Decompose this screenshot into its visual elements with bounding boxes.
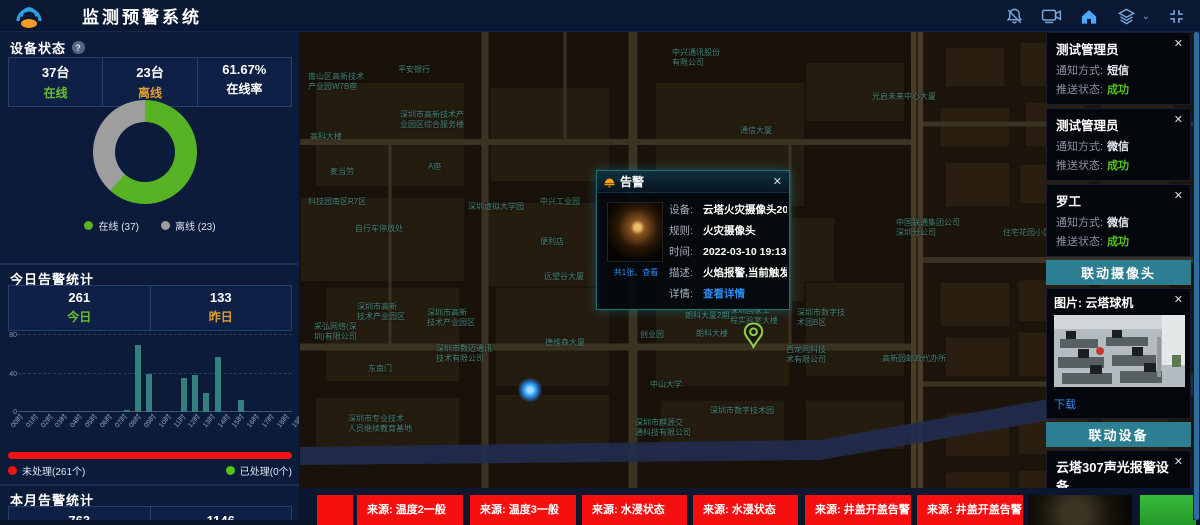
map-label: 中兴工业园 (540, 197, 580, 207)
popup-field-value: 云塔火灾摄像头202 (703, 202, 787, 217)
map-label: 中国联通集团公司 深圳分公司 (896, 218, 960, 238)
row-value: 微信 (1107, 138, 1129, 154)
stat-label: 离线 (105, 84, 194, 101)
app-logo-icon (14, 2, 44, 30)
legend-label: 离线 (23) (175, 218, 216, 233)
bar-slot (87, 335, 98, 412)
bar-slot (29, 335, 40, 412)
map-label: 麦当劳 (330, 167, 354, 177)
camera-section-header: 联动摄像头 (1046, 260, 1191, 285)
alarm-chip[interactable]: 来源: 井盖开盖告警 (805, 495, 911, 525)
detail-link[interactable]: 查看详情 (703, 286, 787, 301)
map-label: 光启未来中心大厦 (872, 92, 936, 102)
map-label: 创业园 (640, 330, 664, 340)
popup-field-value: 火焰报警,当前触发值为... (703, 265, 787, 280)
bar (146, 374, 152, 413)
alarm-snapshot-image[interactable] (607, 202, 663, 262)
bar-slot (258, 335, 269, 412)
bar (124, 410, 130, 412)
donut-legend: 在线 (37)离线 (23) (0, 218, 300, 233)
map-label: 中山大学 (650, 380, 682, 390)
bar-xlabels: 00时01时02时03时04时05时06时07时08时09时10时11时12时1… (12, 415, 294, 431)
bar (215, 357, 221, 412)
map-label: 便利店 (540, 237, 564, 247)
camera-card: ✕ 图片: 云塔球机 下载 (1046, 288, 1191, 419)
popup-field: 时间:2022-03-10 19:13:07 (669, 241, 787, 262)
popup-field-label: 描述: (669, 265, 703, 280)
unhandled-progress-bar (8, 452, 292, 459)
right-notification-panel: ✕测试管理员通知方式:短信推送状态:成功✕测试管理员通知方式:微信推送状态:成功… (1044, 32, 1193, 492)
bar-slot (281, 335, 292, 412)
bar-slot (224, 335, 235, 412)
bar-slot (189, 335, 200, 412)
divider (0, 484, 300, 486)
bar-slot (64, 335, 75, 412)
map-label: 深圳市高新 技术产业园区 (427, 308, 475, 328)
alarm-chip[interactable]: 来源: 水浸状态 (582, 495, 687, 525)
card-row: 通知方式:微信 (1056, 138, 1181, 154)
notification-card: ✕测试管理员通知方式:微信推送状态:成功 (1046, 108, 1191, 181)
map-label: 高新园邮政代办所 (882, 354, 946, 364)
stat-cell: 37台在线 (9, 58, 103, 106)
map-label: 深圳虚拟大学园 (468, 202, 524, 212)
close-icon[interactable]: ✕ (1174, 293, 1183, 306)
bar-slot (41, 335, 52, 412)
row-value: 成功 (1107, 81, 1129, 97)
y-tick-label: 40 (5, 371, 17, 378)
legend-dot (8, 466, 17, 475)
alarm-chip[interactable]: 来源: 水浸状态 (693, 495, 798, 525)
map-label: 深圳市数字技术园 (710, 406, 774, 416)
legend-label: 已处理(0个) (240, 463, 292, 478)
legend-item: 已处理(0个) (226, 463, 292, 478)
bar-slot (144, 335, 155, 412)
popup-field-label: 时间: (669, 244, 703, 259)
device-status-header: 设备状态 ? (10, 38, 85, 57)
popup-field: 详情:查看详情 (669, 283, 787, 304)
bottom-alarm-bar: 来源: 温度2一般来源: 温度3一般来源: 水浸状态来源: 水浸状态来源: 井盖… (300, 488, 1200, 520)
card-row: 通知方式:短信 (1056, 62, 1181, 78)
bar-plot (18, 335, 292, 412)
close-icon[interactable]: ✕ (773, 175, 782, 188)
app-header: 监测预警系统 ⌄ (0, 0, 1200, 32)
popup-field-label: 规则: (669, 223, 703, 238)
stat-cell: 763 (9, 507, 151, 520)
close-icon[interactable]: ✕ (1174, 455, 1183, 468)
row-label: 通知方式: (1056, 214, 1103, 230)
bar (238, 400, 244, 412)
card-row: 推送状态:成功 (1056, 233, 1181, 249)
legend-dot (226, 466, 235, 475)
map-label: 远望谷大厦 (544, 272, 584, 282)
alarm-chip[interactable]: 来源: 温度2一般 (357, 495, 463, 525)
bar (135, 345, 141, 412)
scrollbar-thumb[interactable] (1194, 32, 1199, 520)
scrollbar[interactable] (1193, 32, 1200, 520)
x-tick-label: 19时 (289, 412, 300, 434)
map-label: 朗科大楼 (696, 329, 728, 339)
card-row: 推送状态:成功 (1056, 157, 1181, 173)
map-label: 深圳市专业技术 人员继续教育基地 (348, 414, 412, 434)
close-icon[interactable]: ✕ (1174, 189, 1183, 202)
alarm-chip[interactable]: 来源: 井盖开盖告警 (917, 495, 1023, 525)
stat-label: 在线 (11, 84, 100, 101)
map-label: 深圳市数字技 术园B区 (797, 308, 845, 328)
map-label: 高科大楼 (310, 132, 342, 142)
alarm-chip[interactable] (317, 495, 353, 525)
map-label: 深圳市高新技术产 业园区综合服务楼 (400, 110, 464, 130)
stat-value: 763 (11, 511, 148, 520)
popup-field-label: 设备: (669, 202, 703, 217)
alarm-thumbnail-green[interactable] (1140, 495, 1196, 525)
map-label: 科技园南区R7区 (308, 197, 366, 207)
map-label: 深圳市数迈通讯 技术有限公司 (436, 344, 492, 364)
progress-legend: 未处理(261个)已处理(0个) (8, 463, 292, 478)
notification-card: ✕测试管理员通知方式:短信推送状态:成功 (1046, 32, 1191, 105)
stat-value: 37台 (11, 62, 100, 81)
header-toolbar: ⌄ (1005, 0, 1186, 32)
bar (192, 375, 198, 412)
bar-slot (212, 335, 223, 412)
donut-hole (115, 122, 175, 182)
bell-off-icon[interactable] (1005, 7, 1024, 26)
month-alarms-table: 7631146 (8, 506, 292, 520)
bar-slot (109, 335, 120, 412)
alarm-popup-title: 告警 (620, 173, 773, 190)
map-label: 东南门 (368, 364, 392, 374)
stat-label: 昨日 (153, 308, 290, 325)
legend-dot (161, 221, 170, 230)
map-label: 采弘网络(深 圳)有限公司 (314, 322, 357, 342)
card-row: 通知方式:微信 (1056, 214, 1181, 230)
alarm-location-pin[interactable] (743, 322, 764, 354)
bar-slot (98, 335, 109, 412)
video-camera-icon[interactable] (1041, 7, 1062, 25)
popup-field-label: 详情: (669, 286, 703, 301)
row-value: 微信 (1107, 214, 1129, 230)
bar-slot (166, 335, 177, 412)
row-label: 推送状态: (1056, 233, 1103, 249)
legend-label: 未处理(261个) (22, 463, 85, 478)
bar-slot (178, 335, 189, 412)
alarm-thumbnail-dark[interactable] (1028, 495, 1132, 525)
legend-label: 在线 (37) (98, 218, 139, 233)
map-label: 朗科大厦2期 (685, 311, 729, 321)
legend-item: 在线 (37) (84, 218, 139, 233)
map-label: 中兴通讯股份 有限公司 (672, 48, 720, 68)
bar-slot (121, 335, 132, 412)
popup-field-value: 2022-03-10 19:13:07 (703, 246, 787, 258)
notification-card: ✕罗工通知方式:微信推送状态:成功 (1046, 184, 1191, 257)
popup-field: 规则:火灾摄像头 (669, 220, 787, 241)
map-label: 深圳市麒源交 通科技有限公司 (635, 418, 691, 438)
stat-value: 133 (153, 290, 290, 305)
home-icon[interactable] (1079, 7, 1099, 26)
bar-chart: 04080 (18, 335, 292, 412)
camera-photo[interactable] (1054, 315, 1185, 387)
row-value: 成功 (1107, 157, 1129, 173)
divider (0, 263, 300, 265)
alarm-snapshot-caption[interactable]: 共1张、查看 (605, 267, 667, 278)
row-label: 推送状态: (1056, 81, 1103, 97)
card-title: 云塔307声光报警设备 (1056, 457, 1181, 492)
linked-device-list: ✕云塔307声光报警设备设备编码:ffffff100001ab6c调用服务:报警… (1044, 450, 1193, 492)
notification-card: ✕云塔307声光报警设备设备编码:ffffff100001ab6c调用服务:报警… (1046, 450, 1191, 492)
camera-card-title: 图片: 云塔球机 (1054, 294, 1183, 311)
popup-field: 设备:云塔火灾摄像头202 (669, 199, 787, 220)
bar-slot (155, 335, 166, 412)
stat-value: 1146 (153, 511, 290, 520)
left-stats-panel: 设备状态 ? 37台在线23台离线61.67%在线率 在线 (37)离线 (23… (0, 32, 300, 520)
bar-slot (18, 335, 29, 412)
bar-slot (52, 335, 63, 412)
device-location-marker[interactable] (518, 378, 542, 402)
chevron-down-icon[interactable]: ⌄ (1142, 11, 1150, 22)
card-title: 罗工 (1056, 191, 1181, 210)
close-icon[interactable]: ✕ (1174, 37, 1183, 50)
stat-value: 23台 (105, 62, 194, 81)
map-label: 南山区高新技术 产业园W7B座 (308, 72, 364, 92)
today-alarms-table: 261今日133昨日 (8, 285, 292, 331)
close-icon[interactable]: ✕ (1174, 113, 1183, 126)
alarm-chip[interactable]: 来源: 温度3一般 (470, 495, 576, 525)
map-label: 西龙同科技 术有限公司 (786, 345, 826, 365)
popup-field-value: 火灾摄像头 (703, 223, 787, 238)
card-title: 测试管理员 (1056, 115, 1181, 134)
legend-item: 未处理(261个) (8, 463, 85, 478)
device-status-title: 设备状态 (10, 38, 66, 57)
stat-value: 261 (11, 290, 148, 305)
bar-slot (235, 335, 246, 412)
bar-slot (75, 335, 86, 412)
stat-cell: 61.67%在线率 (198, 58, 291, 106)
y-tick-label: 80 (5, 332, 17, 339)
stat-label: 在线率 (200, 80, 289, 97)
map-label: 通信大厦 (740, 126, 772, 136)
popup-fields: 设备:云塔火灾摄像头202规则:火灾摄像头时间:2022-03-10 19:13… (669, 199, 787, 304)
layers-icon[interactable] (1116, 7, 1137, 26)
download-link[interactable]: 下载 (1054, 396, 1076, 412)
legend-item: 离线 (23) (161, 218, 216, 233)
page-title: 监测预警系统 (82, 3, 202, 28)
alarm-popup-titlebar: 告警 ✕ (597, 171, 789, 193)
stat-cell: 133昨日 (151, 286, 292, 330)
map-label: 平安银行 (398, 65, 430, 75)
card-row: 推送状态:成功 (1056, 81, 1181, 97)
stat-value: 61.67% (200, 62, 289, 77)
alarm-popup: 告警 ✕ 共1张、查看 设备:云塔火灾摄像头202规则:火灾摄像头时间:2022… (596, 170, 790, 310)
bar (181, 378, 187, 412)
stat-label: 今日 (11, 308, 148, 325)
bar (203, 393, 209, 412)
bar-slot (246, 335, 257, 412)
help-icon[interactable]: ? (72, 41, 85, 54)
map-label: A座 (428, 162, 441, 172)
map-label: 深圳市高新 技术产业园区 (357, 302, 405, 322)
row-value: 成功 (1107, 233, 1129, 249)
alarm-lamp-icon (604, 175, 615, 188)
device-section-header: 联动设备 (1046, 422, 1191, 447)
legend-dot (84, 221, 93, 230)
fullscreen-icon[interactable] (1167, 7, 1186, 26)
map-label: 德维森大厦 (545, 338, 585, 348)
notification-list: ✕测试管理员通知方式:短信推送状态:成功✕测试管理员通知方式:微信推送状态:成功… (1044, 32, 1193, 257)
stat-cell: 1146 (151, 507, 292, 520)
bar-slot (269, 335, 280, 412)
stat-cell: 261今日 (9, 286, 151, 330)
row-value: 短信 (1107, 62, 1129, 78)
stat-cell: 23台离线 (103, 58, 197, 106)
bar-slot (132, 335, 143, 412)
row-label: 通知方式: (1056, 138, 1103, 154)
map-label: 自行车停放处 (355, 224, 403, 234)
card-title: 测试管理员 (1056, 39, 1181, 58)
bar-slot (201, 335, 212, 412)
popup-field: 描述:火焰报警,当前触发值为... (669, 262, 787, 283)
row-label: 通知方式: (1056, 62, 1103, 78)
donut-chart (93, 100, 197, 204)
row-label: 推送状态: (1056, 157, 1103, 173)
